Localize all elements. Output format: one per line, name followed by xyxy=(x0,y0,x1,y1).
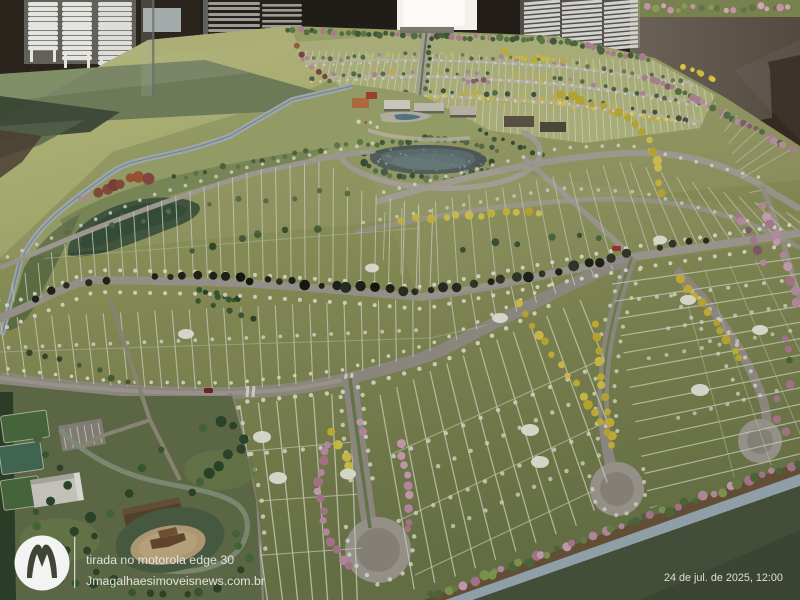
svg-text:24 de jul. de 2025, 12:00: 24 de jul. de 2025, 12:00 xyxy=(664,572,783,584)
svg-text:tirada no motorola edge 30: tirada no motorola edge 30 xyxy=(86,553,234,567)
svg-text:Jmagalhaesimoveisnews.com.br: Jmagalhaesimoveisnews.com.br xyxy=(86,574,265,588)
